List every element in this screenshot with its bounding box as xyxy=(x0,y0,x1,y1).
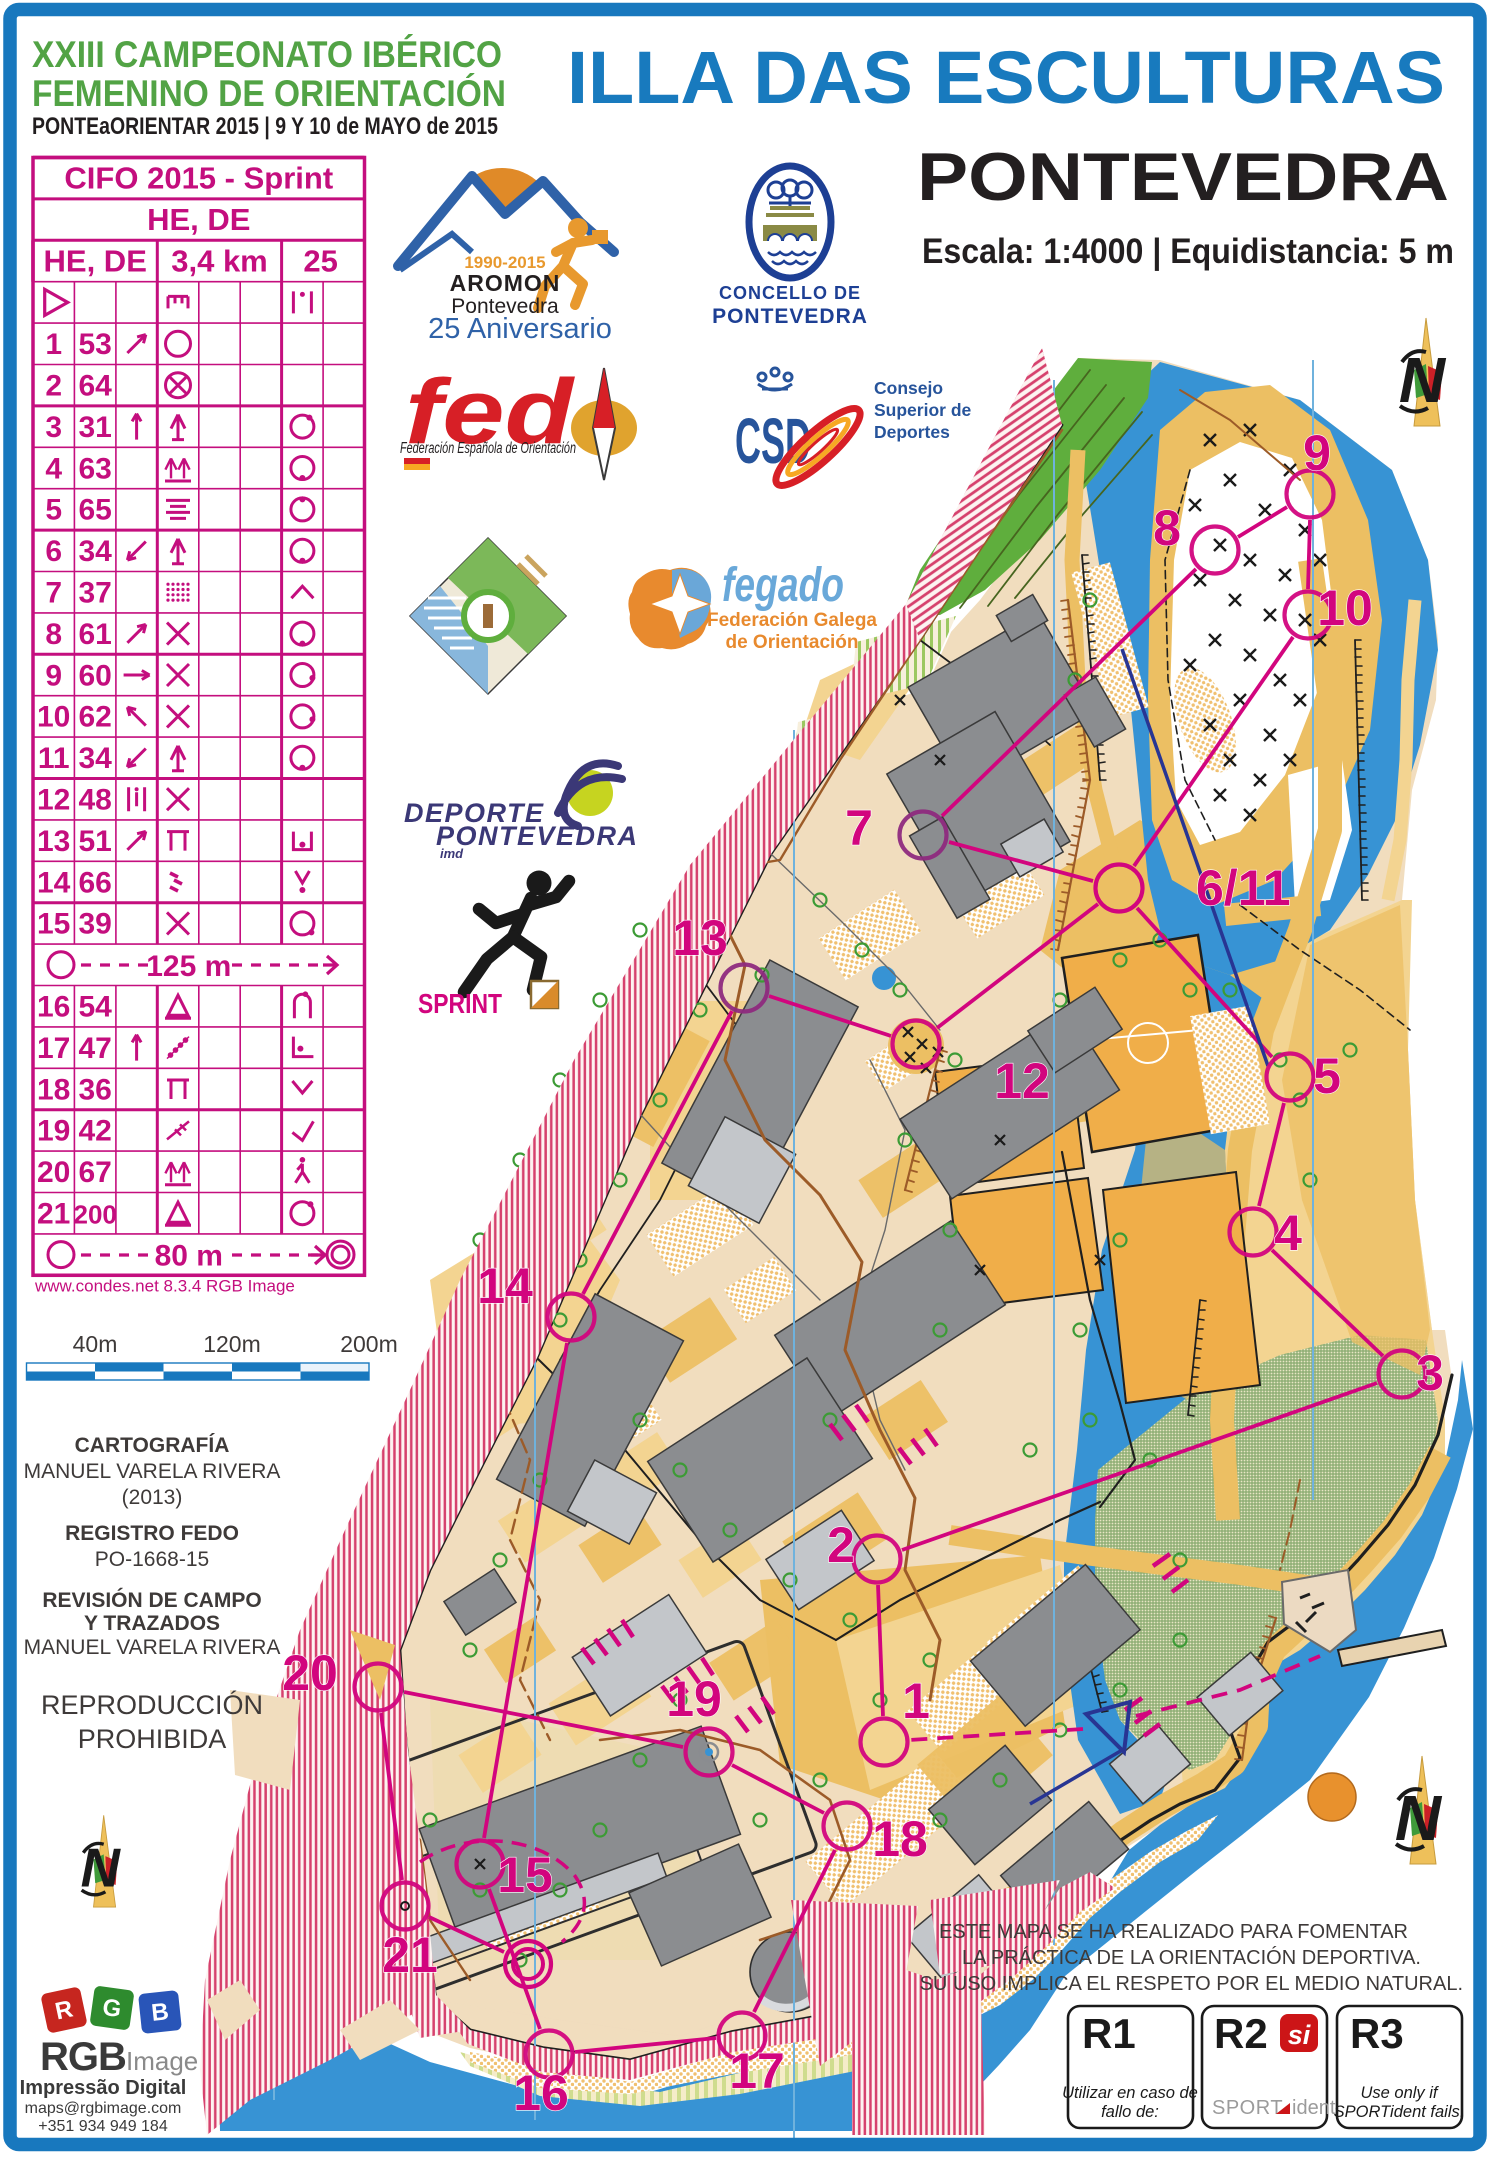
svg-text:SPORT: SPORT xyxy=(1212,2097,1283,2119)
svg-text:SPORTident fails.: SPORTident fails. xyxy=(1334,2103,1465,2121)
svg-text:12: 12 xyxy=(994,1053,1050,1109)
svg-text:4: 4 xyxy=(45,452,62,485)
svg-text:53: 53 xyxy=(79,328,112,361)
svg-text:47: 47 xyxy=(79,1032,112,1065)
svg-text:20: 20 xyxy=(37,1156,70,1189)
svg-text:SU USO IMPLICA EL RESPETO POR: SU USO IMPLICA EL RESPETO POR EL MEDIO N… xyxy=(920,1973,1463,1995)
svg-text:R3: R3 xyxy=(1350,2010,1404,2057)
svg-text:80 m: 80 m xyxy=(155,1240,223,1273)
svg-text:2: 2 xyxy=(827,1517,855,1573)
svg-text:54: 54 xyxy=(79,991,113,1024)
svg-text:62: 62 xyxy=(79,701,112,734)
svg-text:6: 6 xyxy=(45,535,62,568)
svg-text:17: 17 xyxy=(729,2043,785,2099)
svg-text:PONTEVEDRA: PONTEVEDRA xyxy=(436,821,639,851)
svg-text:7: 7 xyxy=(45,577,62,610)
svg-text:MANUEL VARELA RIVERA: MANUEL VARELA RIVERA xyxy=(24,1460,281,1483)
svg-text:15: 15 xyxy=(37,908,70,941)
svg-text:PONTEVEDRA: PONTEVEDRA xyxy=(917,139,1449,215)
svg-text:REVISIÓN DE CAMPO: REVISIÓN DE CAMPO xyxy=(42,1588,261,1612)
svg-text:25: 25 xyxy=(303,243,337,278)
svg-text:12: 12 xyxy=(37,784,70,817)
svg-text:21: 21 xyxy=(382,1927,438,1983)
svg-text:11: 11 xyxy=(38,742,70,775)
svg-text:9: 9 xyxy=(45,659,62,692)
svg-text:10: 10 xyxy=(37,701,70,734)
svg-text:14: 14 xyxy=(477,1258,533,1314)
svg-text:1: 1 xyxy=(45,328,62,361)
svg-text:39: 39 xyxy=(79,908,112,941)
svg-text:HE, DE: HE, DE xyxy=(44,243,147,278)
svg-text:www.condes.net 8.3.4 RGB Image: www.condes.net 8.3.4 RGB Image xyxy=(34,1276,295,1295)
svg-text:CONCELLO DE: CONCELLO DE xyxy=(719,283,861,303)
svg-text:65: 65 xyxy=(79,494,112,527)
svg-text:18: 18 xyxy=(37,1073,70,1106)
svg-text:PO-1668-15: PO-1668-15 xyxy=(95,1548,209,1571)
svg-text:PONTEVEDRA: PONTEVEDRA xyxy=(712,305,868,328)
svg-text:3: 3 xyxy=(45,411,62,444)
svg-text:61: 61 xyxy=(79,618,112,651)
svg-text:125 m: 125 m xyxy=(146,950,231,983)
svg-text:Escala: 1:4000 | Equidistancia: Escala: 1:4000 | Equidistancia: 5 m xyxy=(922,232,1454,271)
svg-text:ILLA DAS ESCULTURAS: ILLA DAS ESCULTURAS xyxy=(567,36,1445,119)
svg-text:imd: imd xyxy=(440,846,464,861)
svg-text:PONTEaORIENTAR 2015 | 9 Y 10 d: PONTEaORIENTAR 2015 | 9 Y 10 de MAYO de … xyxy=(32,113,498,140)
svg-text:B: B xyxy=(150,1998,170,2027)
svg-text:R1: R1 xyxy=(1082,2010,1136,2057)
svg-text:FEMENINO DE ORIENTACIÓN: FEMENINO DE ORIENTACIÓN xyxy=(32,72,506,114)
svg-text:R2: R2 xyxy=(1214,2010,1268,2057)
svg-text:14: 14 xyxy=(37,866,71,899)
svg-text:LA PRÁCTICA DE LA ORIENTACIÓN: LA PRÁCTICA DE LA ORIENTACIÓN DEPORTIVA. xyxy=(962,1946,1421,1969)
svg-text:10: 10 xyxy=(1317,580,1373,636)
svg-text:Use only if: Use only if xyxy=(1360,2084,1439,2102)
svg-text:8: 8 xyxy=(1153,500,1181,556)
svg-text:fallo de:: fallo de: xyxy=(1101,2103,1159,2121)
svg-text:5: 5 xyxy=(1313,1048,1341,1104)
svg-text:+351 934 949 184: +351 934 949 184 xyxy=(38,2118,168,2135)
svg-text:48: 48 xyxy=(79,784,112,817)
svg-text:9: 9 xyxy=(1303,425,1331,481)
svg-text:3: 3 xyxy=(1416,1345,1444,1401)
svg-text:64: 64 xyxy=(79,370,113,403)
svg-text:ident: ident xyxy=(1292,2097,1336,2119)
svg-text:21: 21 xyxy=(37,1198,70,1231)
svg-text:37: 37 xyxy=(79,577,112,610)
svg-text:1: 1 xyxy=(902,1673,930,1729)
svg-text:Superior de: Superior de xyxy=(874,400,972,420)
svg-text:MANUEL VARELA RIVERA: MANUEL VARELA RIVERA xyxy=(24,1636,281,1659)
svg-text:19: 19 xyxy=(666,1671,722,1727)
svg-text:XXIII CAMPEONATO IBÉRICO: XXIII CAMPEONATO IBÉRICO xyxy=(32,34,502,75)
svg-text:25 Aniversario: 25 Aniversario xyxy=(428,313,612,345)
svg-text:CARTOGRAFÍA: CARTOGRAFÍA xyxy=(75,1434,230,1457)
svg-text:RGB: RGB xyxy=(40,2035,126,2079)
svg-text:36: 36 xyxy=(79,1073,112,1106)
svg-text:Impressão Digital: Impressão Digital xyxy=(20,2077,187,2099)
svg-text:(2013): (2013) xyxy=(122,1486,183,1509)
svg-text:REPRODUCCIÓN: REPRODUCCIÓN xyxy=(41,1689,263,1720)
svg-text:40m: 40m xyxy=(73,1331,118,1357)
svg-text:67: 67 xyxy=(79,1156,112,1189)
svg-text:de Orientación: de Orientación xyxy=(725,632,858,653)
svg-text:18: 18 xyxy=(872,1811,928,1867)
svg-text:34: 34 xyxy=(79,742,113,775)
svg-text:Federación Española de Orienta: Federación Española de Orientación xyxy=(400,440,576,457)
svg-text:Consejo: Consejo xyxy=(874,378,943,398)
svg-text:13: 13 xyxy=(37,825,70,858)
svg-text:Utilizar en caso de: Utilizar en caso de xyxy=(1062,2084,1198,2102)
svg-text:16: 16 xyxy=(513,2065,569,2121)
svg-text:19: 19 xyxy=(37,1115,70,1148)
svg-text:200: 200 xyxy=(74,1200,117,1230)
svg-text:60: 60 xyxy=(79,659,112,692)
svg-text:si: si xyxy=(1288,2020,1311,2050)
svg-text:66: 66 xyxy=(79,866,112,899)
svg-text:maps@rgbimage.com: maps@rgbimage.com xyxy=(25,2100,182,2117)
svg-text:HE, DE: HE, DE xyxy=(147,202,250,237)
svg-text:3,4 km: 3,4 km xyxy=(171,243,268,278)
svg-text:13: 13 xyxy=(672,910,728,966)
svg-text:2: 2 xyxy=(45,370,62,403)
svg-text:4: 4 xyxy=(1274,1205,1302,1261)
svg-text:SPRINT: SPRINT xyxy=(418,988,502,1019)
svg-text:REGISTRO FEDO: REGISTRO FEDO xyxy=(65,1522,239,1545)
svg-text:Y TRAZADOS: Y TRAZADOS xyxy=(84,1612,220,1635)
svg-text:fegado: fegado xyxy=(722,559,844,612)
svg-text:8: 8 xyxy=(45,618,62,651)
svg-text:ESTE MAPA SE HA REALIZADO PARA: ESTE MAPA SE HA REALIZADO PARA FOMENTAR xyxy=(939,1921,1408,1943)
svg-text:6/11: 6/11 xyxy=(1196,860,1291,916)
svg-text:Federación Galega: Federación Galega xyxy=(707,610,877,631)
svg-text:AROMON: AROMON xyxy=(450,270,561,296)
svg-text:7: 7 xyxy=(845,800,873,856)
svg-text:Deportes: Deportes xyxy=(874,422,950,442)
svg-text:20: 20 xyxy=(282,1645,338,1701)
svg-text:5: 5 xyxy=(45,494,62,527)
svg-text:Image: Image xyxy=(126,2046,198,2076)
svg-text:31: 31 xyxy=(79,411,112,444)
svg-text:G: G xyxy=(101,1994,123,2023)
svg-text:51: 51 xyxy=(79,825,112,858)
svg-text:120m: 120m xyxy=(203,1331,261,1357)
svg-text:200m: 200m xyxy=(340,1331,398,1357)
svg-text:16: 16 xyxy=(37,991,70,1024)
svg-text:17: 17 xyxy=(37,1032,70,1065)
svg-text:63: 63 xyxy=(79,452,112,485)
svg-text:34: 34 xyxy=(79,535,113,568)
svg-text:CIFO 2015 - Sprint: CIFO 2015 - Sprint xyxy=(64,161,333,196)
svg-text:PROHIBIDA: PROHIBIDA xyxy=(78,1724,227,1754)
svg-text:15: 15 xyxy=(497,1847,553,1903)
svg-text:42: 42 xyxy=(79,1115,112,1148)
